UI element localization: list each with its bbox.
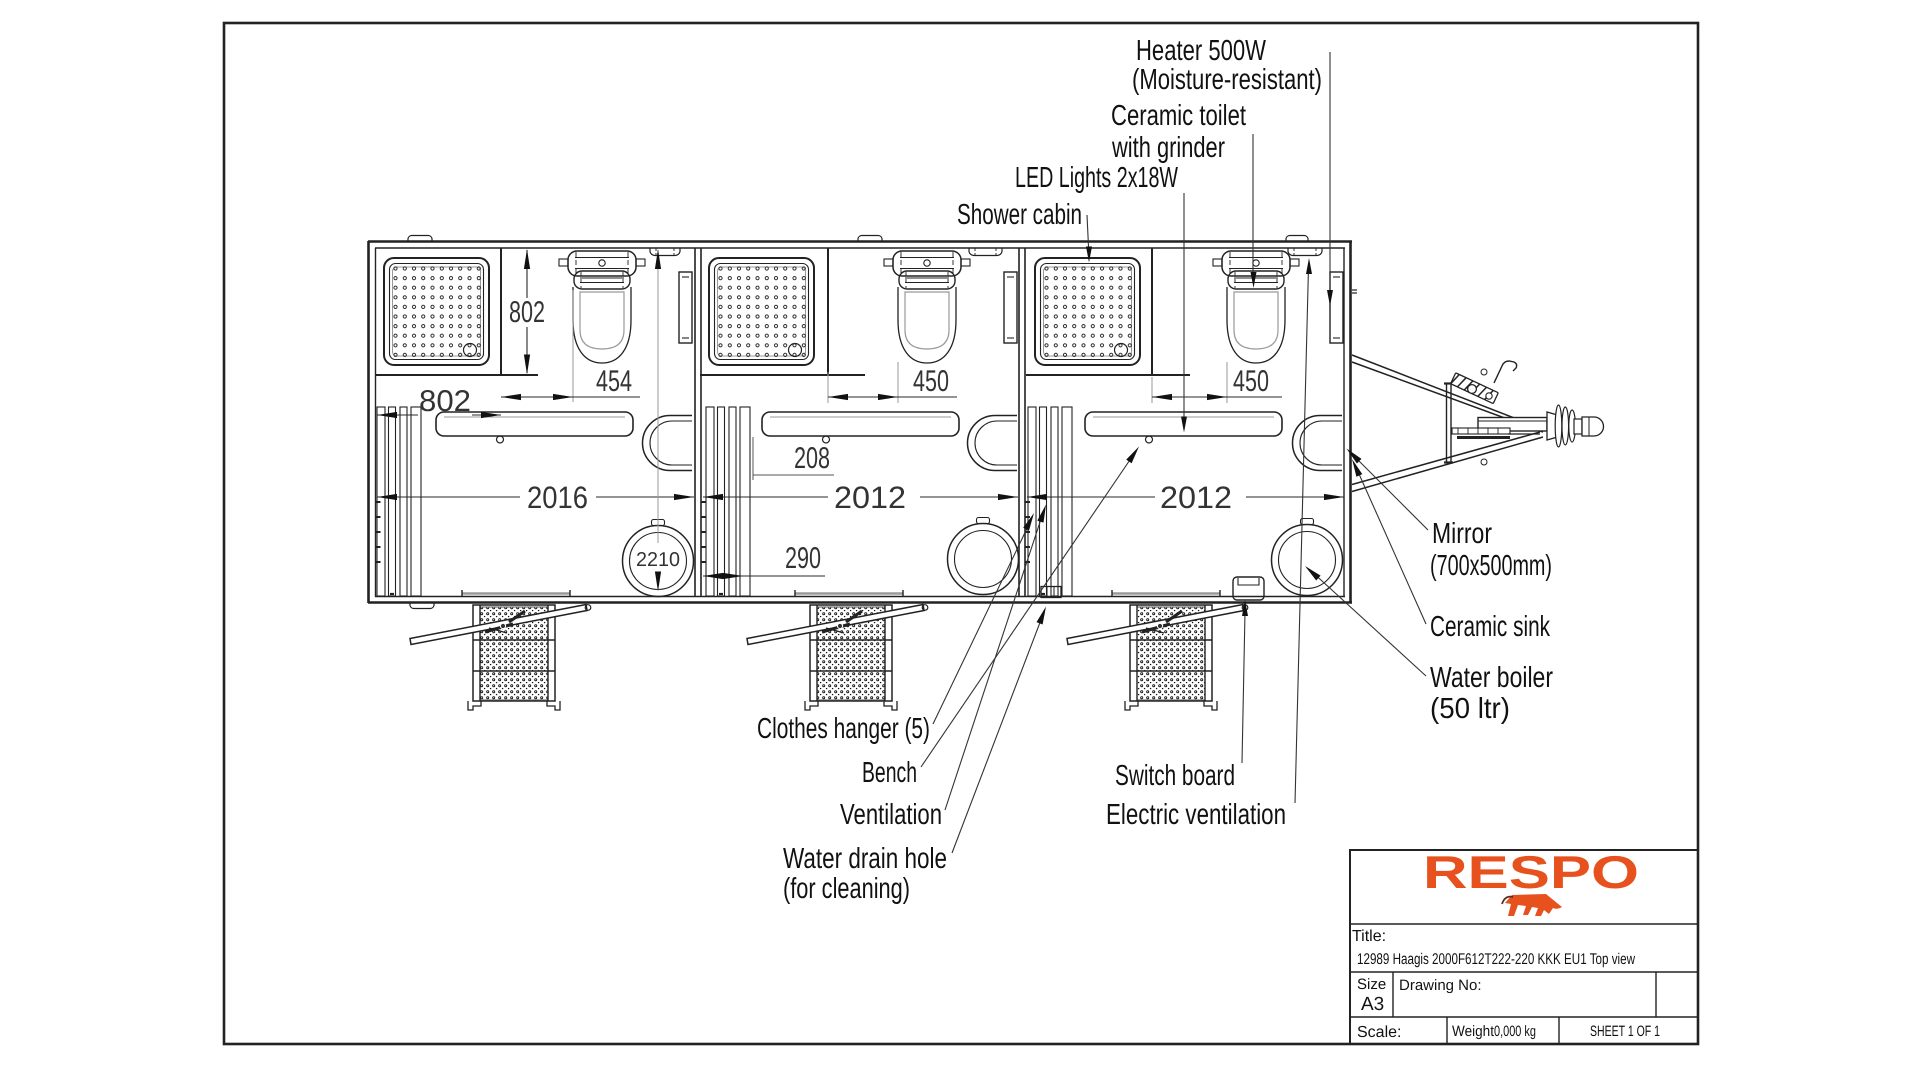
svg-text:2012: 2012 — [1160, 480, 1232, 515]
svg-text:Size: Size — [1357, 976, 1386, 993]
svg-text:Switch board: Switch board — [1115, 760, 1235, 792]
svg-text:Water boiler: Water boiler — [1430, 662, 1553, 694]
svg-text:Water drain hole: Water drain hole — [783, 843, 947, 875]
svg-text:450: 450 — [1233, 365, 1269, 398]
svg-text:0,000 kg: 0,000 kg — [1494, 1023, 1536, 1040]
svg-text:Scale:: Scale: — [1357, 1024, 1401, 1041]
svg-text:SHEET 1 OF 1: SHEET 1 OF 1 — [1590, 1023, 1660, 1040]
svg-text:802: 802 — [509, 296, 545, 329]
svg-text:(for cleaning): (for cleaning) — [783, 873, 910, 905]
svg-text:Clothes hanger (5): Clothes hanger (5) — [757, 713, 930, 745]
svg-text:208: 208 — [794, 442, 830, 475]
svg-text:2016: 2016 — [527, 480, 588, 515]
svg-text:A3: A3 — [1361, 994, 1384, 1015]
svg-text:2012: 2012 — [834, 480, 906, 515]
svg-text:Ceramic sink: Ceramic sink — [1430, 611, 1550, 643]
svg-text:802: 802 — [419, 385, 471, 418]
svg-text:290: 290 — [785, 542, 821, 575]
svg-text:Drawing No:: Drawing No: — [1399, 977, 1482, 994]
svg-text:Bench: Bench — [862, 757, 917, 789]
svg-text:2210: 2210 — [636, 549, 680, 571]
svg-text:12989 Haagis 2000F612T222-220: 12989 Haagis 2000F612T222-220 KKK EU1 To… — [1357, 951, 1636, 968]
svg-text:Ventilation: Ventilation — [840, 799, 942, 831]
svg-text:454: 454 — [596, 365, 632, 398]
svg-text:Heater 500W: Heater 500W — [1136, 35, 1266, 67]
svg-text:Title:: Title: — [1352, 928, 1386, 945]
svg-text:(Moisture-resistant): (Moisture-resistant) — [1132, 64, 1322, 96]
svg-text:RESPO: RESPO — [1423, 846, 1639, 898]
svg-text:LED Lights 2x18W: LED Lights 2x18W — [1015, 162, 1178, 194]
svg-text:(700x500mm): (700x500mm) — [1430, 550, 1552, 582]
svg-text:Ceramic toilet: Ceramic toilet — [1111, 100, 1246, 132]
svg-text:Electric ventilation: Electric ventilation — [1106, 799, 1286, 831]
svg-text:with grinder: with grinder — [1111, 132, 1225, 164]
svg-text:450: 450 — [913, 365, 949, 398]
svg-text:(50 ltr): (50 ltr) — [1430, 693, 1510, 725]
svg-text:Weight: Weight — [1452, 1023, 1495, 1040]
svg-text:Mirror: Mirror — [1432, 518, 1492, 550]
svg-text:Shower cabin: Shower cabin — [957, 199, 1082, 231]
